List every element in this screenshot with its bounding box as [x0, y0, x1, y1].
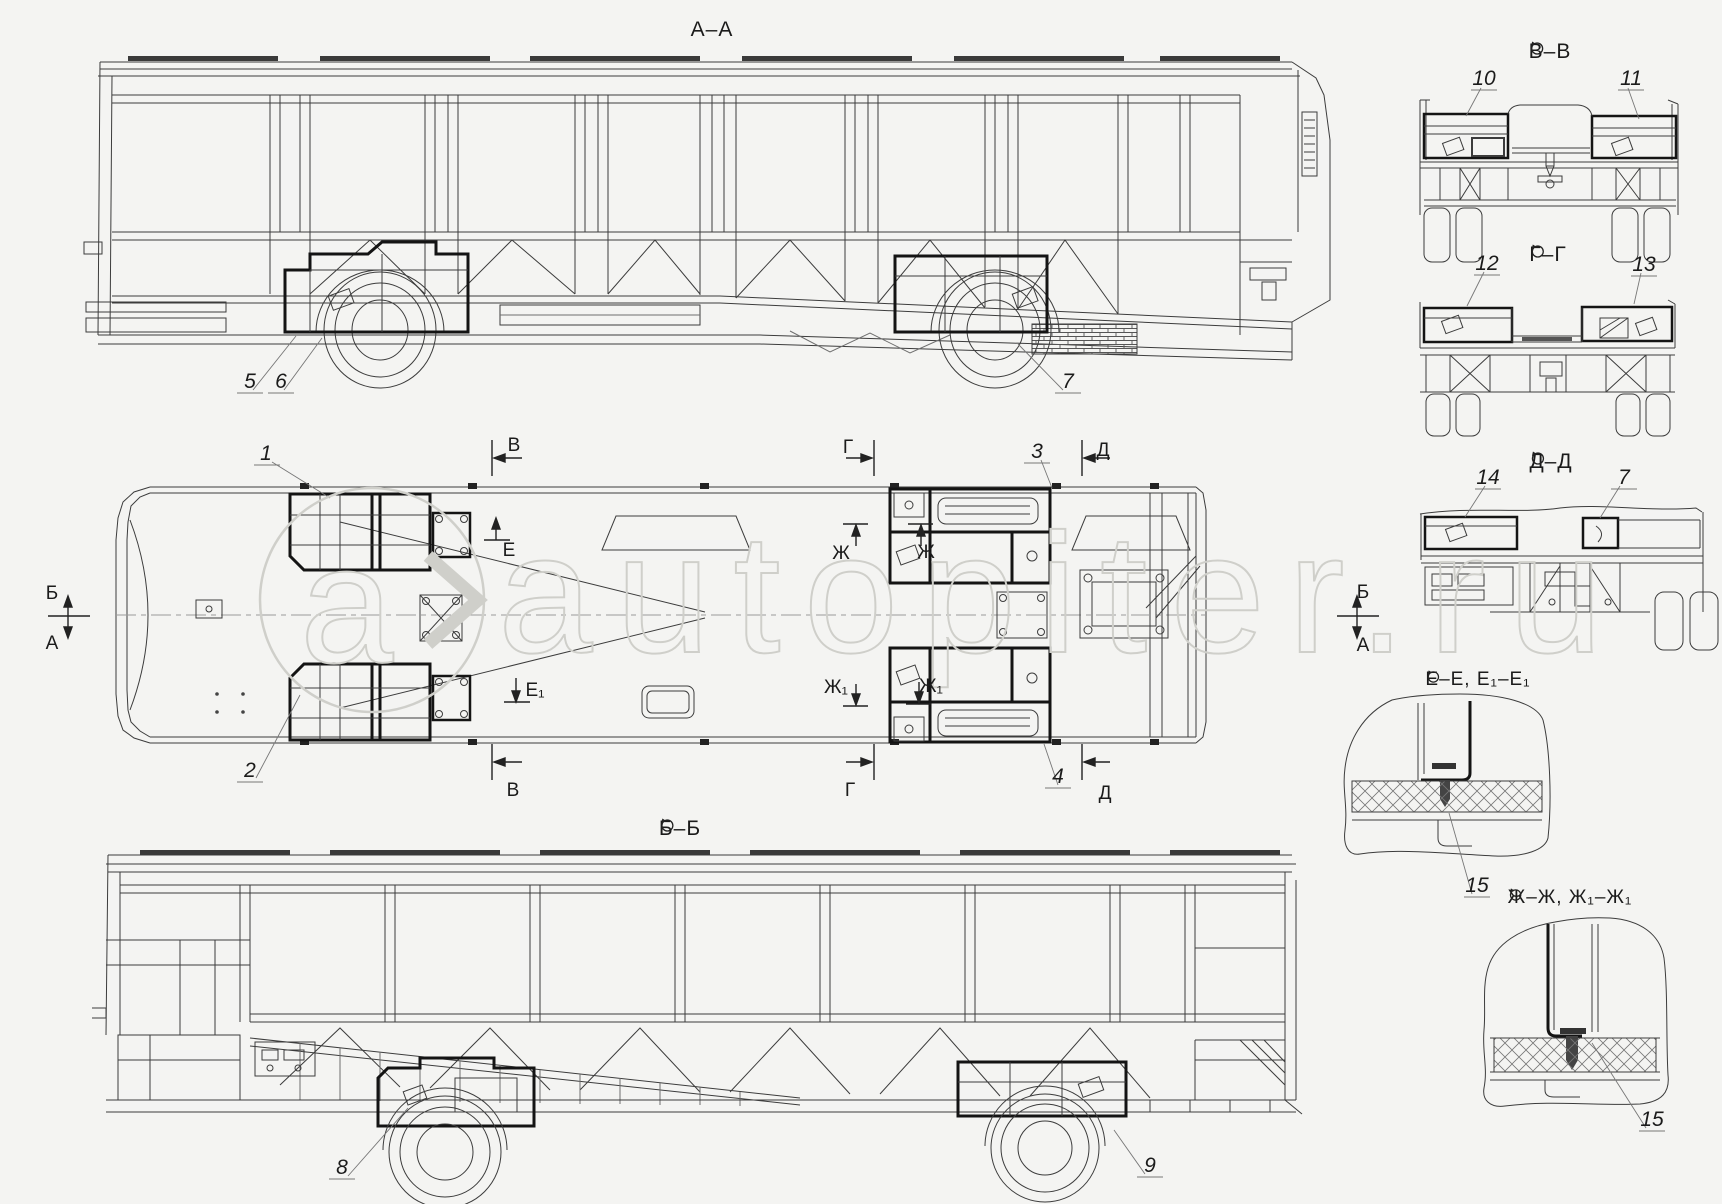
section-marker-e1: Е₁	[525, 680, 544, 702]
view-title-a-a: А–А	[691, 18, 734, 42]
section-marker-e: Е	[503, 540, 516, 562]
section-marker-zh1-a: Ж₁	[824, 677, 848, 699]
callout-9: 9	[1144, 1154, 1156, 1178]
view-title-b-b: Б–Б	[659, 817, 705, 841]
callout-8: 8	[336, 1156, 348, 1180]
section-marker-d-bottom: Д	[1099, 783, 1112, 805]
callout-5: 5	[244, 370, 256, 394]
technical-drawing-linework: a autopiter.ru	[0, 0, 1722, 1204]
view-a-a	[84, 56, 1330, 388]
section-marker-a-left: А	[46, 633, 59, 655]
section-marker-a-right: А	[1357, 635, 1370, 657]
detail-zh-zh	[1484, 918, 1669, 1107]
callout-12: 12	[1475, 252, 1498, 276]
section-marker-g-top: Г	[843, 437, 853, 459]
watermark-text: autopiter.ru	[498, 499, 1603, 689]
view-title-zh-zh-text: Ж–Ж, Ж₁–Ж₁	[1508, 887, 1633, 909]
callout-7: 7	[1062, 370, 1074, 394]
callout-2: 2	[244, 759, 256, 783]
section-g-g	[1420, 300, 1675, 436]
callout-7b: 7	[1618, 466, 1630, 490]
drawing-sheet: a autopiter.ru А–А В–В Г–Г Д–Д Б–Б Е–Е, …	[0, 0, 1722, 1204]
view-title-a-a-text: А–А	[691, 18, 734, 42]
section-marker-d-top: Д	[1097, 440, 1110, 462]
section-v-v	[1420, 100, 1678, 262]
section-marker-v-top: В	[508, 435, 521, 457]
view-title-v-v: В–В	[1529, 40, 1576, 64]
section-marker-zh-a: Ж	[832, 543, 850, 565]
callout-14: 14	[1476, 466, 1499, 490]
callout-13: 13	[1632, 253, 1655, 277]
callout-10: 10	[1472, 67, 1495, 91]
view-title-zh-zh: Ж–Ж, Ж₁–Ж₁	[1508, 887, 1637, 909]
callout-6: 6	[275, 370, 287, 394]
section-marker-b-left: Б	[46, 583, 58, 605]
section-marker-zh-b: Ж	[917, 542, 935, 564]
view-title-d-d: Д–Д	[1529, 450, 1576, 474]
callout-3: 3	[1031, 440, 1043, 464]
section-marker-b-right: Б	[1357, 582, 1369, 604]
section-marker-g-bottom: Г	[845, 780, 855, 802]
callout-15a: 15	[1465, 874, 1488, 898]
callout-1: 1	[260, 442, 272, 466]
section-marker-zh1-b: Ж₁	[919, 676, 943, 698]
view-title-e-e: Е–Е, Е₁–Е₁	[1425, 669, 1534, 691]
watermark-logo-letter: a	[300, 510, 394, 698]
view-title-g-g: Г–Г	[1529, 243, 1570, 267]
callout-11: 11	[1620, 67, 1642, 91]
callout-15b: 15	[1640, 1108, 1663, 1132]
view-title-e-e-text: Е–Е, Е₁–Е₁	[1425, 669, 1530, 691]
view-b-b	[92, 850, 1302, 1204]
callout-4: 4	[1052, 765, 1064, 789]
detail-e-e	[1344, 694, 1550, 856]
section-marker-v-bottom: В	[507, 780, 520, 802]
